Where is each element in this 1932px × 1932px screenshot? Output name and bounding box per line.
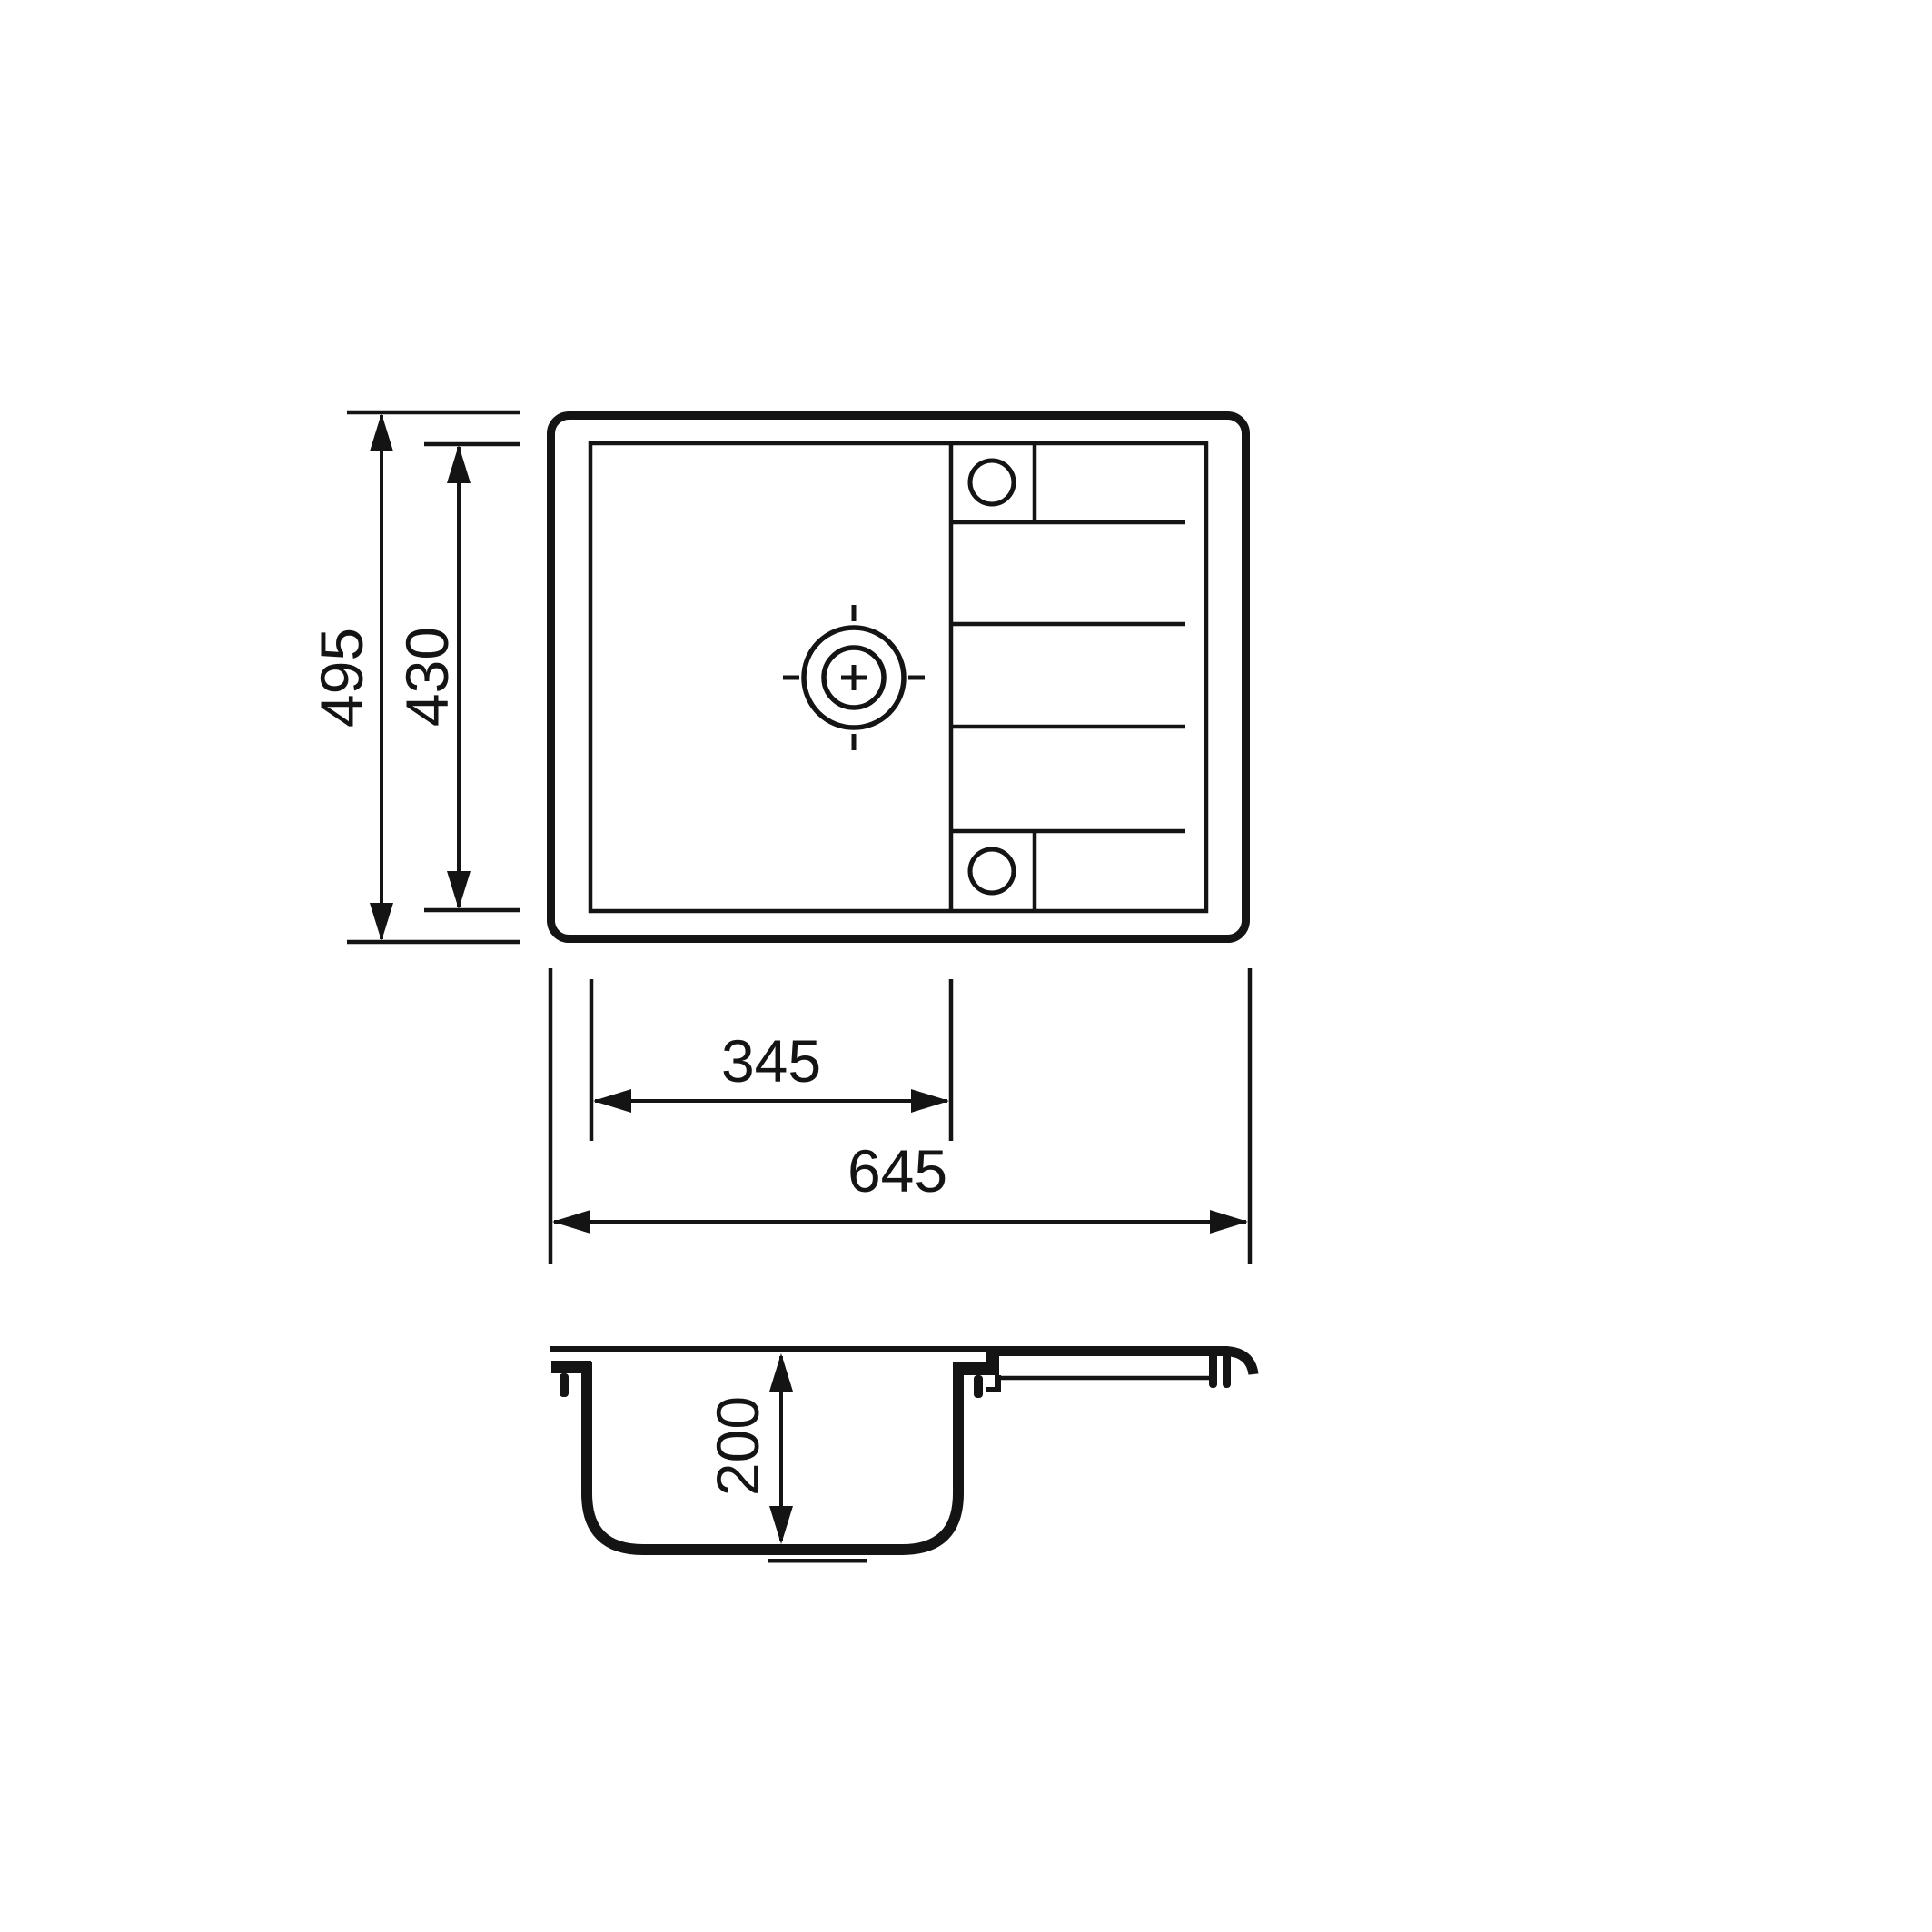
drainboard-hook-prongs: [1209, 1352, 1231, 1388]
arrowhead-down: [769, 1506, 793, 1544]
drain-symbol-icon: [783, 605, 925, 750]
arrowhead-down: [447, 871, 471, 909]
drain-boss: [768, 1559, 867, 1563]
drainboard-ribs: [951, 522, 1185, 831]
top-view: [551, 416, 1246, 939]
section-view: [550, 1347, 1253, 1563]
tap-hole-bottom-icon: [970, 849, 1014, 893]
dimension-645: [552, 1210, 1248, 1234]
dimension-200: [769, 1353, 793, 1544]
dim-label-200: 200: [704, 1396, 771, 1496]
arrowhead-up: [447, 445, 471, 483]
sink-outer-rim: [551, 416, 1246, 939]
arrowhead-left: [593, 1089, 631, 1113]
arrowhead-down: [370, 903, 393, 941]
dim-label-430: 430: [393, 627, 461, 727]
drawing-sheet: 495 430 345 645: [0, 0, 1932, 1932]
arrowhead-right: [1210, 1210, 1248, 1234]
sink-technical-drawing: 495 430 345 645: [0, 0, 1932, 1932]
arrowhead-up: [769, 1353, 793, 1392]
arrowhead-right: [911, 1089, 949, 1113]
sink-inner-edge: [590, 443, 1206, 911]
arrowhead-up: [370, 413, 393, 451]
tap-hole-top-icon: [970, 461, 1014, 504]
dim-label-345: 345: [721, 1027, 821, 1095]
dim-label-645: 645: [847, 1137, 947, 1204]
arrowhead-left: [552, 1210, 590, 1234]
dim-label-495: 495: [308, 628, 375, 728]
